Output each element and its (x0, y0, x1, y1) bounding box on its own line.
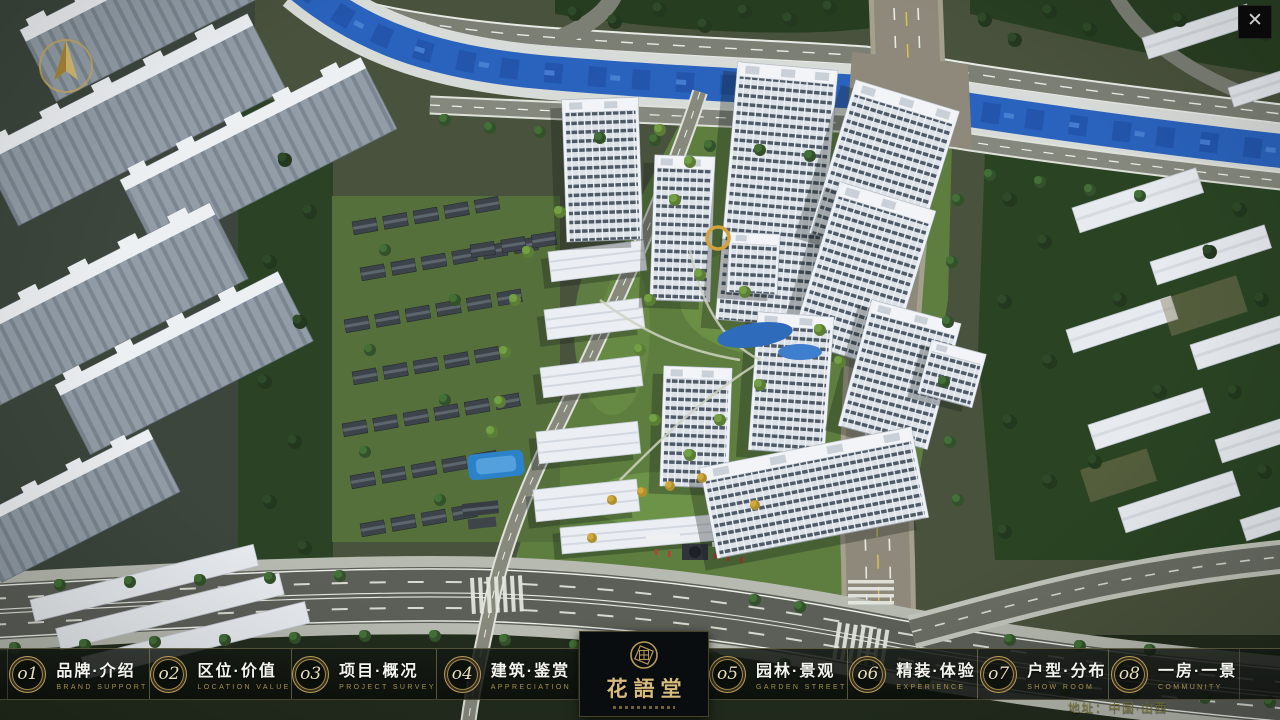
nav-item-room-view[interactable]: o8 一房·一景COMMUNITY (1108, 649, 1240, 699)
nav-item-brand-intro[interactable]: o1 品牌·介绍BRAND SUPPORT (7, 649, 150, 699)
nav-item-location-value[interactable]: o2 区位·价值LOCATION VALUE (149, 649, 292, 699)
sales-presentation-screen: ✕ o1 品牌·介绍BRAND SUPPORT o2 区位·价值LOCATION… (0, 0, 1280, 720)
nav-item-label: 项目·概况 (339, 657, 418, 681)
nav-item-label: 区位·价值 (197, 657, 276, 681)
seal-icon (629, 640, 659, 670)
nav-item-sublabel: SHOW ROOM (1027, 684, 1094, 691)
close-icon: ✕ (1247, 10, 1263, 31)
nav-group-left: o1 品牌·介绍BRAND SUPPORT o2 区位·价值LOCATION V… (8, 649, 579, 699)
nav-number-badge: o4 (444, 656, 481, 693)
nav-number-badge: o5 (709, 656, 746, 693)
nav-item-architecture[interactable]: o4 建筑·鉴赏APPRECIATION (436, 649, 579, 699)
nav-group-right: o5 园林·景观GARDEN STREET o6 精装·体验EXPERIENCE… (709, 649, 1280, 699)
nav-item-sublabel: EXPERIENCE (896, 684, 965, 691)
nav-item-sublabel: LOCATION VALUE (197, 684, 290, 691)
nav-number-badge: o2 (150, 656, 187, 693)
nav-number-badge: o8 (1111, 656, 1148, 693)
nav-number: o2 (158, 664, 179, 684)
nav-item-label: 品牌·介绍 (56, 657, 135, 681)
nav-item-floorplan-distribution[interactable]: o7 户型·分布SHOW ROOM (977, 649, 1109, 699)
nav-item-sublabel: PROJECT SURVEY (339, 684, 436, 691)
nav-item-project-overview[interactable]: o3 项目·概况PROJECT SURVEY (291, 649, 437, 699)
nav-item-sublabel: GARDEN STREET (756, 684, 847, 691)
nav-number: o4 (452, 664, 473, 684)
logo-tagline-line (613, 706, 675, 709)
nav-item-label: 一房·一景 (1158, 657, 1237, 681)
nav-spacer (1240, 649, 1280, 699)
nav-item-sublabel: APPRECIATION (491, 684, 571, 691)
close-button[interactable]: ✕ (1238, 5, 1272, 39)
nav-number: o6 (857, 664, 878, 684)
compass-north-icon (34, 34, 98, 98)
masterplan-aerial-render (0, 0, 1280, 720)
nav-number: o1 (17, 664, 38, 684)
nav-number-badge: o6 (849, 656, 886, 693)
nav-item-label: 园林·景观 (756, 657, 835, 681)
project-address: 地址：中国·山西 (1068, 699, 1168, 716)
nav-item-label: 精装·体验 (896, 657, 975, 681)
nav-number-badge: o3 (292, 656, 329, 693)
nav-item-label: 户型·分布 (1027, 657, 1106, 681)
nav-number: o8 (1119, 664, 1140, 684)
nav-number-badge: o1 (9, 656, 46, 693)
project-logo-panel[interactable]: 花語堂 (579, 631, 709, 717)
nav-item-label: 建筑·鉴赏 (491, 657, 570, 681)
nav-number: o5 (717, 664, 738, 684)
nav-item-interior-experience[interactable]: o6 精装·体验EXPERIENCE (847, 649, 979, 699)
nav-number: o3 (300, 664, 321, 684)
nav-number-badge: o7 (980, 656, 1017, 693)
nav-number: o7 (988, 664, 1009, 684)
project-logo-title: 花語堂 (601, 673, 688, 703)
nav-item-landscape[interactable]: o5 园林·景观GARDEN STREET (708, 649, 848, 699)
bottom-nav: o1 品牌·介绍BRAND SUPPORT o2 区位·价值LOCATION V… (0, 648, 1280, 700)
nav-item-sublabel: BRAND SUPPORT (56, 684, 147, 691)
nav-item-sublabel: COMMUNITY (1158, 684, 1223, 691)
